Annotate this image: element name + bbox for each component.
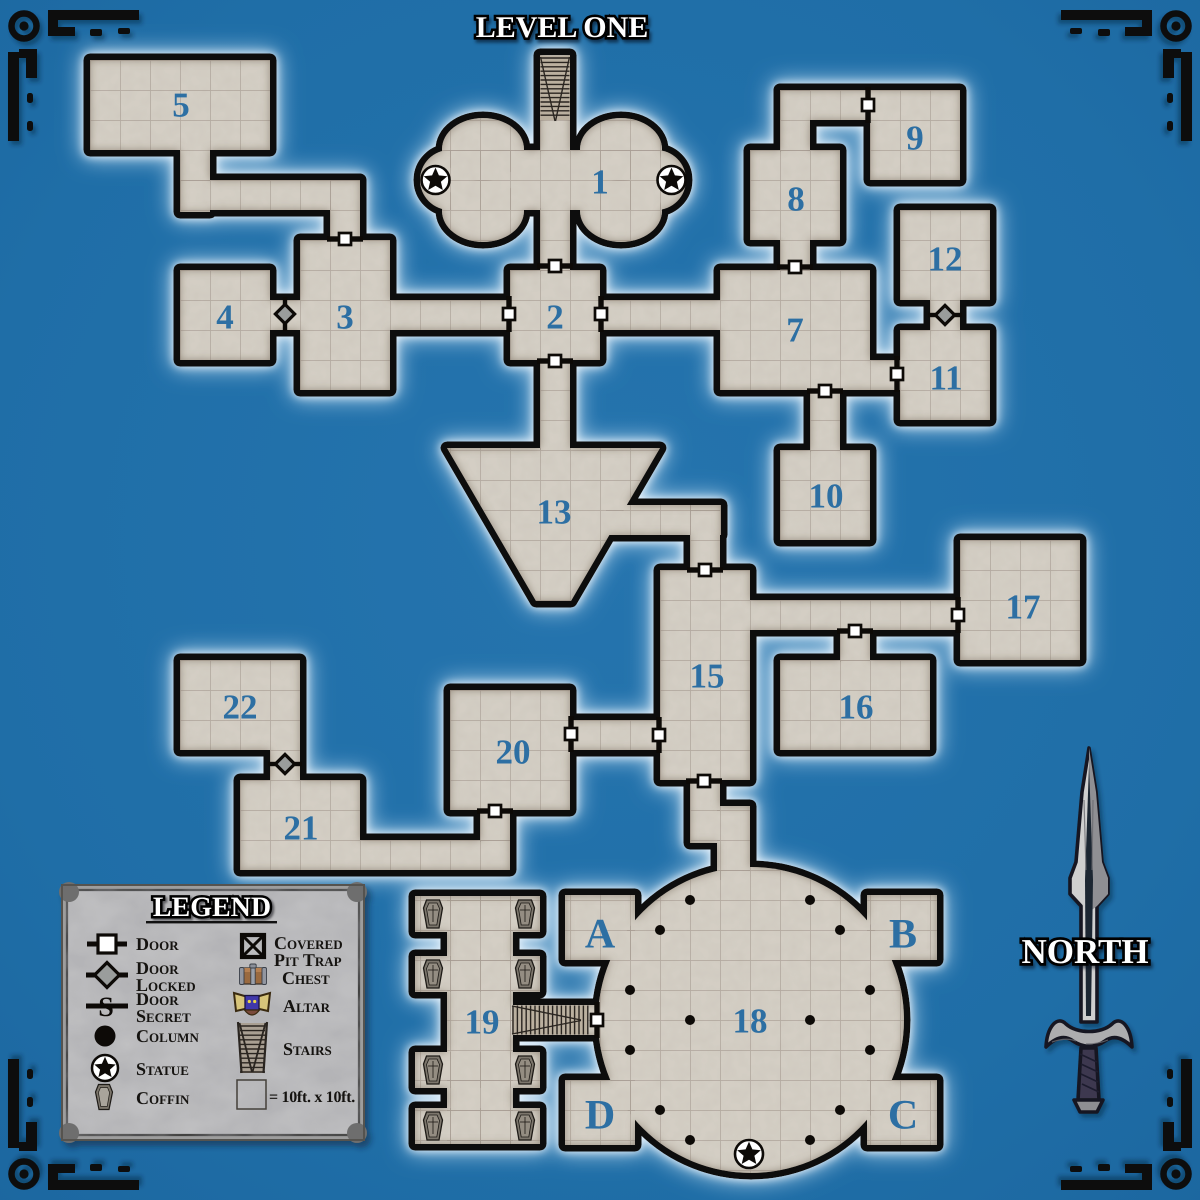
svg-text:C: C [888, 1093, 918, 1139]
svg-text:12: 12 [928, 239, 963, 278]
svg-text:15: 15 [690, 656, 725, 695]
svg-text:19: 19 [465, 1002, 500, 1041]
svg-text:A: A [585, 912, 616, 958]
svg-text:= 10ft. x 10ft.: = 10ft. x 10ft. [269, 1089, 355, 1106]
svg-text:Chest: Chest [282, 968, 330, 988]
svg-text:20: 20 [496, 732, 531, 771]
svg-text:2: 2 [546, 297, 564, 336]
svg-text:Column: Column [136, 1026, 199, 1046]
svg-text:Stairs: Stairs [283, 1039, 332, 1059]
svg-text:Pit Trap: Pit Trap [274, 950, 342, 970]
svg-text:Statue: Statue [136, 1059, 189, 1079]
svg-text:B: B [889, 912, 917, 958]
svg-text:LEVEL ONE: LEVEL ONE [476, 11, 649, 44]
svg-text:D: D [585, 1093, 615, 1139]
svg-text:18: 18 [733, 1001, 768, 1040]
svg-text:1: 1 [591, 162, 609, 201]
svg-text:3: 3 [336, 297, 354, 336]
svg-text:NORTH: NORTH [1021, 932, 1148, 971]
svg-text:Altar: Altar [283, 996, 331, 1016]
svg-text:5: 5 [172, 85, 190, 124]
svg-text:4: 4 [216, 297, 234, 336]
svg-text:13: 13 [537, 492, 572, 531]
svg-text:Door: Door [136, 934, 179, 954]
svg-text:8: 8 [787, 179, 805, 218]
svg-text:Coffin: Coffin [136, 1088, 190, 1108]
svg-text:LEGEND: LEGEND [153, 892, 271, 923]
svg-text:9: 9 [906, 118, 924, 157]
svg-text:21: 21 [284, 808, 319, 847]
svg-text:Secret: Secret [136, 1006, 191, 1026]
svg-text:17: 17 [1006, 587, 1041, 626]
svg-text:S: S [98, 992, 114, 1023]
svg-text:16: 16 [839, 687, 874, 726]
svg-text:10: 10 [809, 476, 844, 515]
svg-text:22: 22 [223, 687, 258, 726]
svg-text:7: 7 [786, 310, 804, 349]
svg-text:11: 11 [929, 358, 962, 397]
